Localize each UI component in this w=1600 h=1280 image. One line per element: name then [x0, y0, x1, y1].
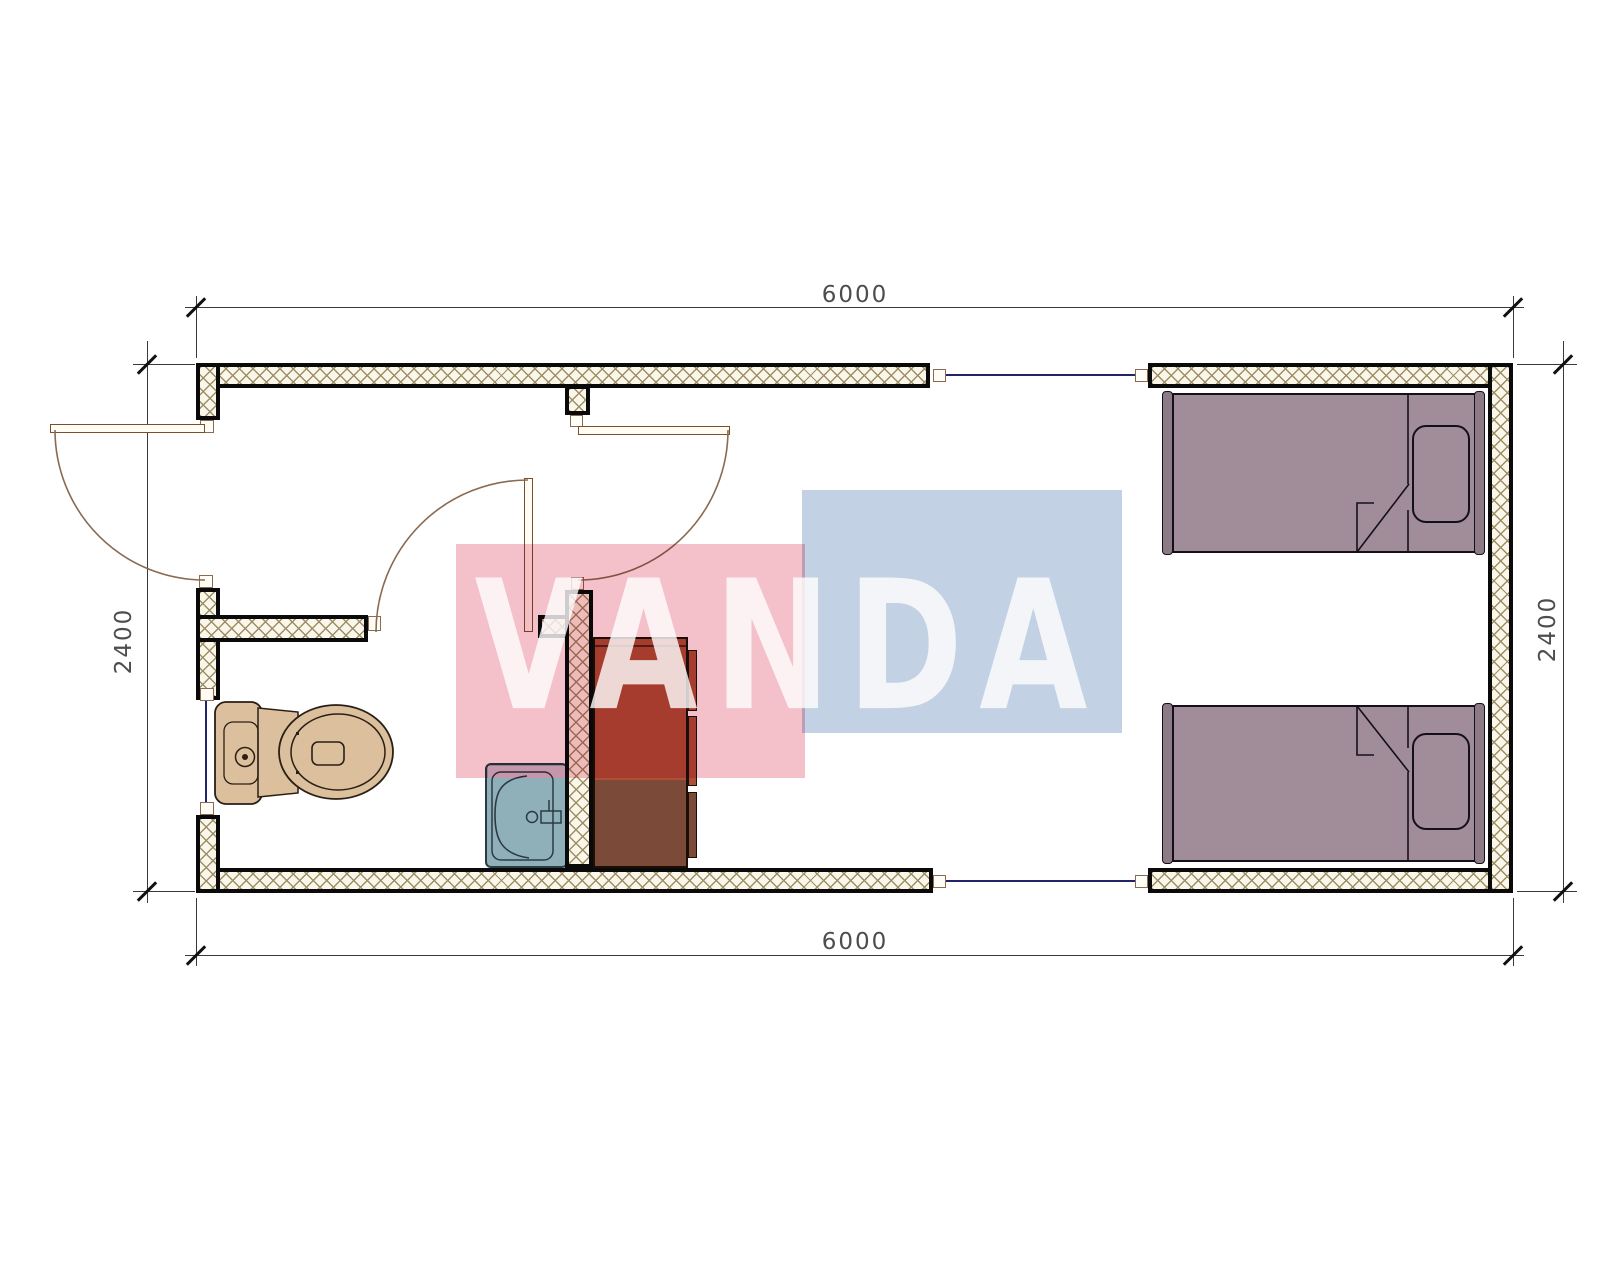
dim-label-bottom: 6000	[805, 929, 905, 955]
wall-top-left-section	[196, 363, 930, 388]
bed-top-footboard	[1474, 391, 1485, 555]
toilet-flush-button-dot	[242, 754, 248, 760]
dim-line-right	[1563, 341, 1564, 903]
watermark-text: VANDA	[456, 546, 1122, 751]
window-jamb-cap	[933, 369, 946, 382]
toilet-bolt	[296, 771, 299, 774]
toilet-tank	[215, 702, 262, 804]
bed-top-pillow	[1412, 425, 1470, 523]
bed-bottom-headboard	[1162, 703, 1173, 864]
dim-line-bottom	[185, 955, 1524, 956]
toilet-bowl-inner	[291, 714, 385, 790]
extension-line	[1517, 891, 1577, 892]
dim-label-left: 2400	[111, 591, 137, 691]
door-jamb-cap	[368, 616, 381, 631]
floor-plan-canvas: 6000 6000 2400 2400	[0, 0, 1600, 1280]
entry-door-swing-arc	[55, 430, 205, 580]
window-jamb-cap	[200, 802, 214, 815]
door-jamb-cap	[199, 575, 213, 588]
toilet-bolt	[296, 732, 299, 735]
toilet-flush-valve	[312, 742, 344, 765]
wall-bathroom-partition	[196, 615, 368, 642]
window-left-wall	[205, 701, 207, 802]
extension-line	[133, 891, 195, 892]
extension-line	[133, 364, 195, 365]
window-jamb-cap	[1135, 369, 1148, 382]
bed-bottom-pillow	[1412, 733, 1470, 830]
window-jamb-cap	[933, 875, 946, 888]
bathroom-sink	[485, 763, 568, 868]
dim-label-right: 2400	[1535, 579, 1561, 679]
bed-top-headboard	[1162, 391, 1173, 555]
wall-top-right-section	[1148, 363, 1513, 388]
toilet-tank-lid	[224, 722, 258, 784]
wall-right	[1488, 363, 1513, 893]
window-bottom-junction	[946, 880, 1135, 882]
bed-bottom-footboard	[1474, 703, 1485, 864]
bedroom-door-leaf	[578, 426, 730, 435]
toilet-flush-button	[236, 748, 255, 767]
window-jamb-cap	[1135, 875, 1148, 888]
wall-bottom-left-section	[196, 868, 933, 893]
dim-label-top: 6000	[805, 282, 905, 308]
wall-bottom-right-section	[1148, 868, 1513, 893]
extension-line	[1517, 364, 1577, 365]
toilet-body	[258, 708, 298, 797]
wall-doorway-stub	[565, 385, 590, 415]
toilet	[215, 702, 393, 804]
cabinet-door-front	[688, 792, 697, 858]
window-jamb-cap	[200, 688, 214, 701]
wall-left-middle	[196, 588, 220, 700]
wall-left-upper	[196, 363, 220, 420]
window-top-junction	[946, 374, 1135, 376]
entry-door-leaf	[50, 424, 205, 433]
toilet-bowl	[279, 705, 393, 799]
wall-left-lower	[196, 815, 220, 893]
